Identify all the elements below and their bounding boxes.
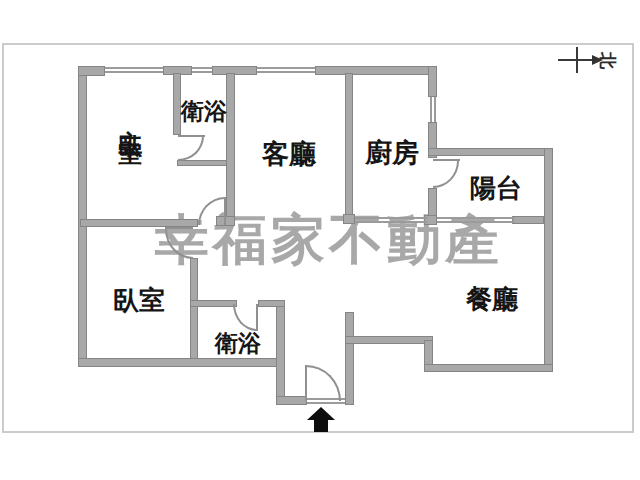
room-label-master-bedroom: 主臥室 [118,110,143,125]
wall-segment [512,216,544,224]
wall-segment [345,73,353,220]
wall-segment [276,396,307,405]
wall-segment [78,358,285,367]
window-symbol [192,67,212,73]
wall-segment [315,66,437,75]
wall-segment [544,148,553,372]
wall-segment [78,66,105,76]
wall-segment [226,73,235,218]
wall-segment [177,160,233,166]
wall-segment [78,66,87,367]
wall-segment [343,214,355,224]
wall-segment [424,364,553,372]
wall-segment [428,148,553,156]
room-label-bathroom-ensuite: 衛浴 [181,99,227,123]
wall-segment [173,73,181,135]
wall-segment [190,258,198,367]
entrance-arrow-stem [314,419,328,432]
wall-segment [276,300,285,405]
room-label-living-room: 客廳 [262,140,316,168]
wall-segment [428,66,437,97]
wall-segment [258,300,285,307]
room-label-bedroom: 臥室 [113,287,165,314]
wall-segment [345,336,433,344]
wall-segment [80,219,198,227]
north-label: 北 [599,52,616,69]
room-label-bathroom: 衛浴 [215,331,261,355]
window-symbol [430,97,436,122]
floorplan-canvas: 幸福家不動產 主臥室 衛浴 客廳 廚房 陽台 [0,0,640,480]
window-symbol [105,67,163,73]
window-symbol [355,217,428,223]
compass-line [576,47,578,73]
window-symbol [437,217,515,223]
window-symbol [257,67,315,73]
room-label-balcony: 陽台 [470,175,522,202]
wall-segment [345,312,354,405]
wall-segment [190,300,237,307]
room-label-dining-room: 餐廳 [466,286,518,313]
room-label-kitchen: 廚房 [365,139,419,167]
